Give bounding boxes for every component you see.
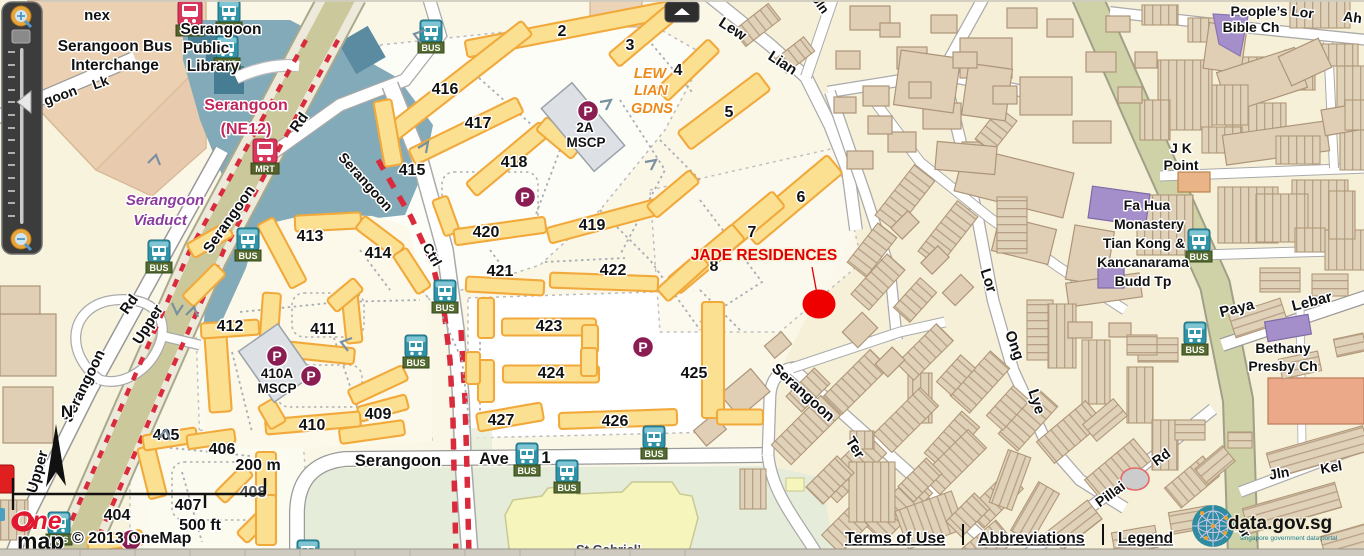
svg-text:418: 418 bbox=[501, 154, 528, 171]
svg-text:Bethany: Bethany bbox=[1255, 340, 1310, 356]
svg-text:MRT: MRT bbox=[255, 164, 275, 174]
svg-text:data.gov.sg: data.gov.sg bbox=[1228, 513, 1332, 534]
svg-text:415: 415 bbox=[399, 162, 426, 179]
svg-text:N: N bbox=[61, 402, 73, 421]
svg-text:BUS: BUS bbox=[1185, 345, 1204, 355]
svg-text:BUS: BUS bbox=[1189, 252, 1208, 262]
svg-text:2A: 2A bbox=[576, 120, 594, 135]
svg-text:Monastery: Monastery bbox=[1114, 216, 1184, 232]
svg-text:Kancanarama: Kancanarama bbox=[1097, 254, 1189, 270]
svg-text:Presby Ch: Presby Ch bbox=[1248, 358, 1317, 374]
svg-text:LIAN: LIAN bbox=[634, 83, 668, 99]
svg-text:408: 408 bbox=[240, 484, 267, 501]
svg-text:nex: nex bbox=[84, 7, 111, 24]
svg-text:Bible Ch: Bible Ch bbox=[1223, 19, 1280, 35]
svg-text:413: 413 bbox=[297, 228, 324, 245]
svg-text:7: 7 bbox=[748, 224, 757, 241]
svg-text:BUS: BUS bbox=[644, 449, 663, 459]
svg-text:404: 404 bbox=[104, 507, 131, 524]
svg-text:Interchange: Interchange bbox=[71, 57, 159, 74]
svg-text:J K: J K bbox=[1170, 140, 1192, 156]
svg-text:425: 425 bbox=[681, 365, 708, 382]
svg-text:2: 2 bbox=[558, 23, 567, 40]
svg-text:P: P bbox=[638, 339, 647, 355]
svg-text:BUS: BUS bbox=[238, 251, 257, 261]
svg-text:Library: Library bbox=[187, 58, 240, 75]
svg-text:BUS: BUS bbox=[406, 358, 425, 368]
svg-text:Tian Kong &: Tian Kong & bbox=[1103, 235, 1185, 251]
svg-text:BUS: BUS bbox=[421, 43, 440, 53]
svg-text:Serangoon: Serangoon bbox=[181, 21, 262, 38]
svg-text:5: 5 bbox=[725, 104, 734, 121]
svg-text:427: 427 bbox=[488, 412, 515, 429]
svg-text:Point: Point bbox=[1164, 157, 1199, 173]
svg-text:406: 406 bbox=[209, 441, 236, 458]
svg-text:BUS: BUS bbox=[517, 466, 536, 476]
svg-text:BUS: BUS bbox=[435, 303, 454, 313]
svg-text:Public: Public bbox=[183, 40, 230, 57]
svg-text:P: P bbox=[583, 103, 592, 119]
svg-text:423: 423 bbox=[536, 318, 563, 335]
svg-text:410A: 410A bbox=[261, 366, 294, 381]
svg-text:417: 417 bbox=[465, 115, 492, 132]
svg-text:Serangoon Bus: Serangoon Bus bbox=[58, 38, 173, 55]
svg-text:BUS: BUS bbox=[149, 263, 168, 273]
svg-text:People’s: People’s bbox=[1230, 3, 1287, 19]
svg-text:MSCP: MSCP bbox=[257, 381, 296, 396]
svg-text:421: 421 bbox=[487, 263, 514, 280]
svg-text:426: 426 bbox=[602, 413, 629, 430]
svg-text:414: 414 bbox=[365, 245, 392, 262]
svg-text:Fa Hua: Fa Hua bbox=[1124, 197, 1171, 213]
svg-text:422: 422 bbox=[600, 262, 627, 279]
svg-text:P: P bbox=[306, 368, 315, 384]
svg-text:JADE RESIDENCES: JADE RESIDENCES bbox=[691, 247, 837, 264]
svg-text:BUS: BUS bbox=[557, 483, 576, 493]
svg-text:407: 407 bbox=[175, 497, 202, 514]
svg-text:200 m: 200 m bbox=[235, 457, 280, 474]
svg-text:Serangoon: Serangoon bbox=[204, 97, 288, 114]
svg-text:P: P bbox=[272, 348, 281, 364]
svg-text:4: 4 bbox=[674, 62, 683, 79]
svg-text:411: 411 bbox=[310, 321, 336, 338]
svg-text:P: P bbox=[520, 189, 529, 205]
svg-text:Legend: Legend bbox=[1118, 530, 1173, 547]
svg-text:© 2013 OneMap: © 2013 OneMap bbox=[72, 530, 192, 547]
svg-text:Lor: Lor bbox=[1290, 3, 1315, 22]
svg-text:(NE12): (NE12) bbox=[221, 121, 272, 138]
svg-text:Serangoon: Serangoon bbox=[126, 192, 204, 209]
svg-text:Ah: Ah bbox=[1342, 8, 1363, 26]
svg-text:MSCP: MSCP bbox=[566, 135, 605, 150]
svg-text:410: 410 bbox=[299, 417, 326, 434]
svg-text:3: 3 bbox=[626, 37, 635, 54]
svg-text:1: 1 bbox=[541, 449, 550, 467]
svg-text:GDNS: GDNS bbox=[631, 101, 673, 117]
svg-text:416: 416 bbox=[432, 81, 459, 98]
svg-text:LEW: LEW bbox=[634, 66, 668, 82]
svg-text:6: 6 bbox=[797, 189, 806, 206]
svg-text:Ave: Ave bbox=[479, 450, 509, 468]
svg-text:Terms of Use: Terms of Use bbox=[845, 530, 945, 547]
svg-text:412: 412 bbox=[217, 318, 244, 335]
svg-text:Serangoon: Serangoon bbox=[355, 452, 441, 470]
svg-text:409: 409 bbox=[365, 406, 392, 423]
svg-text:424: 424 bbox=[538, 365, 565, 382]
svg-text:Viaduct: Viaduct bbox=[133, 212, 188, 229]
svg-text:419: 419 bbox=[579, 217, 606, 234]
svg-text:420: 420 bbox=[473, 224, 500, 241]
svg-text:Budd Tp: Budd Tp bbox=[1115, 273, 1172, 289]
svg-text:singapore government data port: singapore government data portal bbox=[1240, 535, 1338, 542]
svg-text:Abbreviations: Abbreviations bbox=[978, 530, 1085, 547]
